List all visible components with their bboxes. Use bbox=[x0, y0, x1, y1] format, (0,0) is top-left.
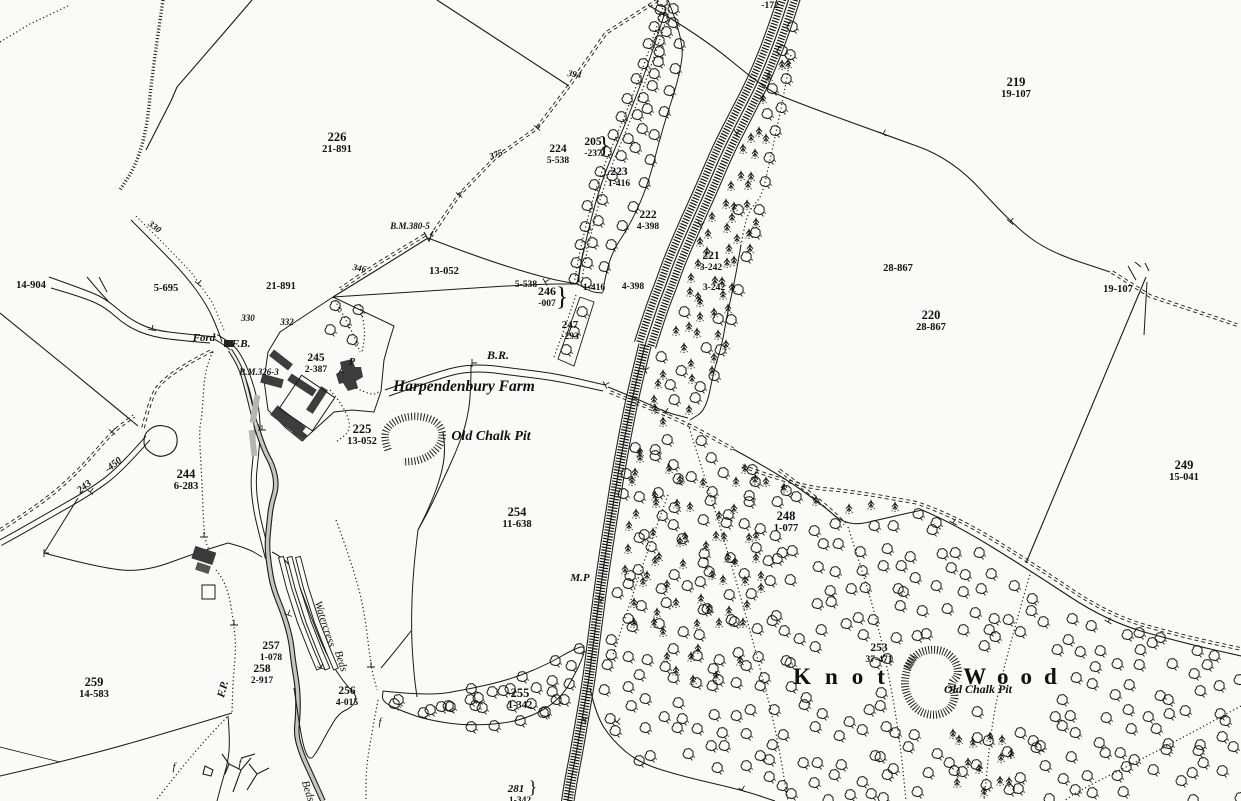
svg-text:}: } bbox=[598, 133, 610, 159]
svg-text:M.P: M.P bbox=[569, 572, 590, 584]
svg-text:Wood: Wood bbox=[963, 664, 1069, 689]
svg-text:1-077: 1-077 bbox=[774, 523, 799, 534]
svg-text:259: 259 bbox=[85, 675, 104, 689]
svg-text:222: 222 bbox=[639, 209, 657, 221]
svg-text:3-242: 3-242 bbox=[700, 263, 722, 273]
svg-text:P: P bbox=[349, 357, 356, 368]
svg-text:225: 225 bbox=[353, 422, 372, 436]
svg-text:1-342: 1-342 bbox=[509, 796, 531, 801]
svg-text:2-387: 2-387 bbox=[305, 365, 327, 375]
svg-text:258: 258 bbox=[253, 663, 271, 675]
svg-text:5-695: 5-695 bbox=[154, 283, 179, 294]
svg-text:13-052: 13-052 bbox=[429, 266, 459, 277]
svg-text:Knot: Knot bbox=[793, 664, 899, 689]
svg-text:249: 249 bbox=[1175, 458, 1194, 472]
svg-text:28-867: 28-867 bbox=[883, 263, 913, 274]
svg-text:}: } bbox=[529, 777, 538, 797]
svg-text:2-917: 2-917 bbox=[251, 676, 273, 686]
svg-text:254: 254 bbox=[508, 505, 528, 519]
svg-text:1-342: 1-342 bbox=[508, 700, 533, 711]
svg-text:21-891: 21-891 bbox=[322, 144, 352, 155]
svg-text:15-041: 15-041 bbox=[1169, 472, 1199, 483]
svg-text:256: 256 bbox=[338, 685, 356, 697]
svg-text:Old Chalk Pit: Old Chalk Pit bbox=[451, 429, 531, 444]
svg-text:Ford: Ford bbox=[192, 332, 216, 344]
svg-text:257: 257 bbox=[262, 640, 280, 652]
svg-text:19-107: 19-107 bbox=[1103, 284, 1133, 295]
svg-text:221: 221 bbox=[702, 250, 720, 262]
svg-text:B.R.: B.R. bbox=[486, 348, 509, 362]
svg-text:B.M.326-3: B.M.326-3 bbox=[238, 367, 279, 377]
svg-text:244: 244 bbox=[177, 467, 197, 481]
svg-text:281: 281 bbox=[507, 783, 525, 795]
svg-text:245: 245 bbox=[307, 352, 325, 364]
svg-text:14-904: 14-904 bbox=[16, 280, 46, 291]
svg-text:14-583: 14-583 bbox=[79, 689, 109, 700]
svg-text:4-398: 4-398 bbox=[622, 282, 644, 292]
svg-text:1-416: 1-416 bbox=[583, 283, 605, 293]
svg-text:11-638: 11-638 bbox=[502, 519, 531, 530]
svg-text:4-015: 4-015 bbox=[336, 698, 358, 708]
svg-text:28-867: 28-867 bbox=[916, 322, 946, 333]
svg-text:253: 253 bbox=[870, 642, 888, 654]
svg-text:223: 223 bbox=[610, 166, 628, 178]
svg-text:226: 226 bbox=[328, 130, 347, 144]
svg-text:19-107: 19-107 bbox=[1001, 89, 1031, 100]
svg-text:5-538: 5-538 bbox=[547, 156, 569, 166]
svg-text:-007: -007 bbox=[538, 299, 556, 309]
svg-text:3-242: 3-242 bbox=[703, 283, 725, 293]
svg-text:B.M.380-5: B.M.380-5 bbox=[389, 221, 430, 231]
svg-text:5-538: 5-538 bbox=[515, 280, 537, 290]
svg-text:330: 330 bbox=[240, 313, 255, 323]
svg-text:247: 247 bbox=[562, 319, 579, 331]
svg-text:13-052: 13-052 bbox=[347, 436, 377, 447]
svg-text:-293: -293 bbox=[561, 332, 579, 342]
svg-text:332: 332 bbox=[279, 317, 294, 327]
svg-text:219: 219 bbox=[1007, 75, 1026, 89]
svg-text:}: } bbox=[556, 282, 568, 311]
svg-text:4-398: 4-398 bbox=[637, 222, 659, 232]
svg-text:-172: -172 bbox=[761, 1, 779, 11]
svg-text:248: 248 bbox=[777, 509, 796, 523]
svg-text:6-283: 6-283 bbox=[174, 481, 199, 492]
svg-text:21-891: 21-891 bbox=[266, 281, 296, 292]
svg-text:1-416: 1-416 bbox=[608, 179, 630, 189]
svg-text:Harpendenbury Farm: Harpendenbury Farm bbox=[392, 378, 535, 395]
svg-text:224: 224 bbox=[549, 143, 567, 155]
svg-text:255: 255 bbox=[511, 686, 530, 700]
svg-text:F.B.: F.B. bbox=[231, 338, 251, 350]
svg-text:1-078: 1-078 bbox=[260, 653, 282, 663]
svg-text:246: 246 bbox=[538, 284, 556, 298]
svg-text:220: 220 bbox=[922, 308, 941, 322]
